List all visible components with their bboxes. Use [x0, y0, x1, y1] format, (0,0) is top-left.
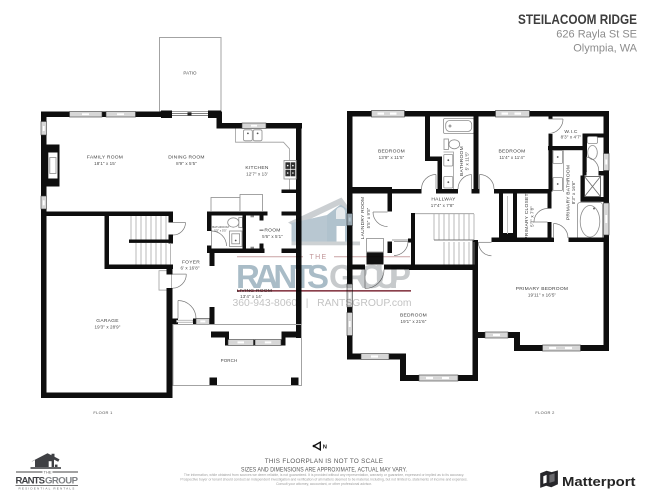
svg-text:8'3" x 16'6": 8'3" x 16'6" — [571, 181, 576, 205]
svg-text:17'4" x 7'8": 17'4" x 7'8" — [431, 203, 455, 208]
svg-text:RESIDENTIAL RENTALS: RESIDENTIAL RENTALS — [19, 486, 76, 490]
svg-text:5'3" x 7'8": 5'3" x 7'8" — [530, 206, 535, 227]
svg-text:PATIO: PATIO — [183, 71, 197, 76]
svg-text:12'7" x 13': 12'7" x 13' — [246, 172, 268, 177]
svg-text:5'6" x 5'1": 5'6" x 5'1" — [262, 234, 283, 239]
svg-text:GROUP: GROUP — [45, 476, 79, 487]
svg-text:ROOM: ROOM — [264, 228, 280, 234]
svg-text:19'11" x 16'5": 19'11" x 16'5" — [528, 293, 557, 298]
svg-text:DINING ROOM: DINING ROOM — [168, 155, 204, 161]
svg-text:Prospective buyer or tenant sh: Prospective buyer or tenant should condu… — [180, 477, 467, 481]
svg-text:5'5" x 9'5": 5'5" x 9'5" — [366, 207, 371, 228]
svg-text:Consult your attorney, account: Consult your attorney, accountant, or ot… — [276, 482, 372, 486]
svg-text:FLOOR 2: FLOOR 2 — [535, 410, 555, 415]
svg-text:8'9" x 5'5": 8'9" x 5'5" — [176, 161, 197, 166]
svg-text:STEILACOOM RIDGE: STEILACOOM RIDGE — [518, 11, 637, 27]
svg-text:BEDROOM: BEDROOM — [400, 313, 427, 319]
svg-text:19'1" x 21'6": 19'1" x 21'6" — [401, 319, 427, 324]
svg-text:BEDROOM: BEDROOM — [378, 149, 405, 155]
svg-text:13'9" x 11'5": 13'9" x 11'5" — [379, 155, 405, 160]
svg-text:THIS FLOORPLAN IS NOT TO SCALE: THIS FLOORPLAN IS NOT TO SCALE — [265, 458, 384, 465]
svg-text:GARAGE: GARAGE — [96, 318, 119, 324]
svg-text:PRIMARY BEDROOM: PRIMARY BEDROOM — [516, 286, 568, 292]
svg-text:19'3" x 28'9": 19'3" x 28'9" — [95, 325, 121, 330]
svg-text:18'1" x 15': 18'1" x 15' — [94, 161, 116, 166]
svg-text:Olympia, WA: Olympia, WA — [573, 43, 637, 55]
svg-text:360-943-8060 | RANTSGROUP.: 360-943-8060 | RANTSGROUP.com — [233, 298, 412, 309]
svg-text:11'4" x 11'4": 11'4" x 11'4" — [499, 155, 525, 160]
svg-text:RANTS: RANTS — [16, 476, 46, 487]
svg-text:HALLWAY: HALLWAY — [431, 197, 456, 203]
svg-text:N: N — [323, 444, 327, 450]
svg-text:GROUP: GROUP — [329, 258, 411, 295]
svg-text:FLOOR 1: FLOOR 1 — [93, 410, 113, 415]
svg-text:RANTS: RANTS — [236, 258, 329, 295]
svg-text:8'3" x 4'7": 8'3" x 4'7" — [561, 135, 582, 140]
svg-text:KITCHEN: KITCHEN — [245, 165, 268, 171]
svg-text:PORCH: PORCH — [221, 358, 238, 363]
svg-text:5' x 11'5": 5' x 11'5" — [465, 151, 470, 170]
svg-text:6' x 16'8": 6' x 16'8" — [180, 266, 199, 271]
svg-text:FAMILY ROOM: FAMILY ROOM — [87, 155, 123, 161]
svg-text:BEDROOM: BEDROOM — [498, 149, 525, 155]
svg-text:The information, while obtaine: The information, while obtained from sou… — [184, 473, 464, 477]
svg-text:Matterport: Matterport — [562, 474, 636, 489]
svg-text:5'5" x 5'5": 5'5" x 5'5" — [214, 228, 227, 232]
svg-text:THE: THE — [44, 470, 52, 475]
svg-text:626 Rayla St SE: 626 Rayla St SE — [556, 29, 637, 41]
